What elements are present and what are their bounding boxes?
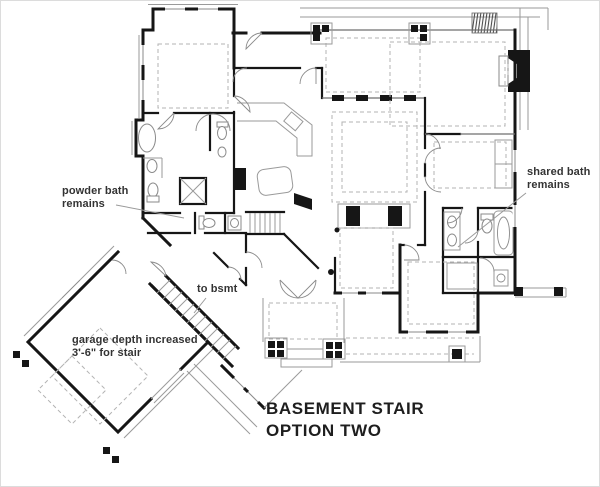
plan-title-line1: BASEMENT STAIR xyxy=(266,398,424,420)
door-arcs xyxy=(112,33,494,298)
floor-plan-page: powder bath remains shared bath remains … xyxy=(0,0,600,487)
nook xyxy=(234,23,430,101)
leader-lines xyxy=(116,193,526,313)
family-room xyxy=(284,112,417,275)
to-bsmt-note: to bsmt xyxy=(197,283,237,296)
powder-bath-note: powder bath remains xyxy=(62,185,129,211)
rear-deck xyxy=(514,287,566,297)
plan-title-line2: OPTION TWO xyxy=(266,420,424,442)
shared-bath-note-line1: shared bath xyxy=(527,166,590,179)
tray-ceiling xyxy=(158,44,228,108)
garage-note-line2: 3'-6" for stair xyxy=(72,347,198,360)
to-bsmt-note-text: to bsmt xyxy=(197,283,237,296)
shared-bath-note: shared bath remains xyxy=(527,166,590,192)
shared-bath-note-line2: remains xyxy=(527,179,590,192)
main-stair xyxy=(246,212,284,234)
dining-room xyxy=(340,228,393,288)
kitchen xyxy=(234,103,312,210)
garage-note: garage depth increased 3'-6" for stair xyxy=(72,334,198,360)
great-room xyxy=(390,42,515,245)
garage-note-line1: garage depth increased xyxy=(72,334,198,347)
powder-bath-note-line1: powder bath xyxy=(62,185,129,198)
plan-title: BASEMENT STAIR OPTION TWO xyxy=(266,398,424,441)
powder-bath-note-line2: remains xyxy=(62,198,129,211)
